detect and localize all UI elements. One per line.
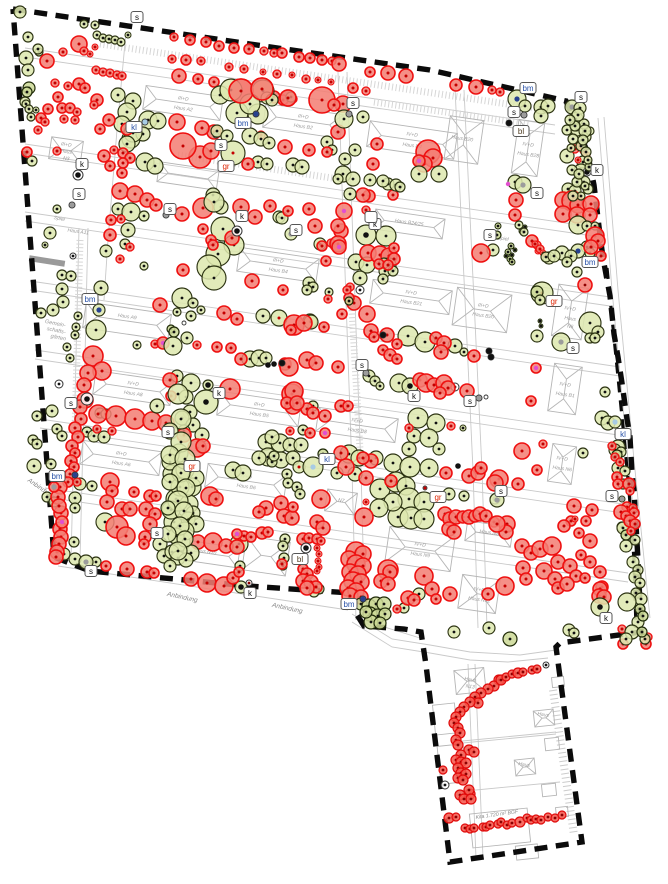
svg-text:bm: bm [237,119,248,128]
svg-text:s: s [360,361,364,370]
svg-text:s: s [351,99,355,108]
svg-text:kl: kl [324,455,330,464]
svg-text:s: s [294,226,298,235]
svg-text:N3: N3 [63,156,70,163]
svg-text:s: s [77,190,81,199]
svg-text:bl: bl [297,555,303,564]
svg-text:s: s [535,189,539,198]
svg-text:bm: bm [84,295,95,304]
svg-text:s: s [135,13,139,22]
svg-text:s: s [579,93,583,102]
svg-text:s: s [155,529,159,538]
svg-text:s: s [488,231,492,240]
svg-text:kl: kl [620,430,626,439]
svg-text:bm: bm [51,472,62,481]
svg-text:s: s [168,205,172,214]
svg-text:bm: bm [522,84,533,93]
svg-text:s: s [499,487,503,496]
svg-text:s: s [166,428,170,437]
svg-text:s: s [468,397,472,406]
svg-text:gr: gr [222,162,229,171]
svg-text:s: s [571,344,575,353]
svg-text:gr: gr [434,493,441,502]
svg-text:gr: gr [188,462,195,471]
svg-text:bl: bl [518,127,524,136]
svg-text:s: s [610,492,614,501]
svg-text:bm: bm [584,258,595,267]
svg-text:s: s [219,141,223,150]
svg-text:N7: N7 [338,498,345,505]
svg-text:gr: gr [550,297,557,306]
svg-text:s: s [512,108,516,117]
svg-text:s: s [69,399,73,408]
svg-text:bm: bm [343,600,354,609]
svg-text:N5: N5 [567,324,574,331]
svg-text:s: s [89,567,93,576]
svg-text:kl: kl [131,123,137,132]
